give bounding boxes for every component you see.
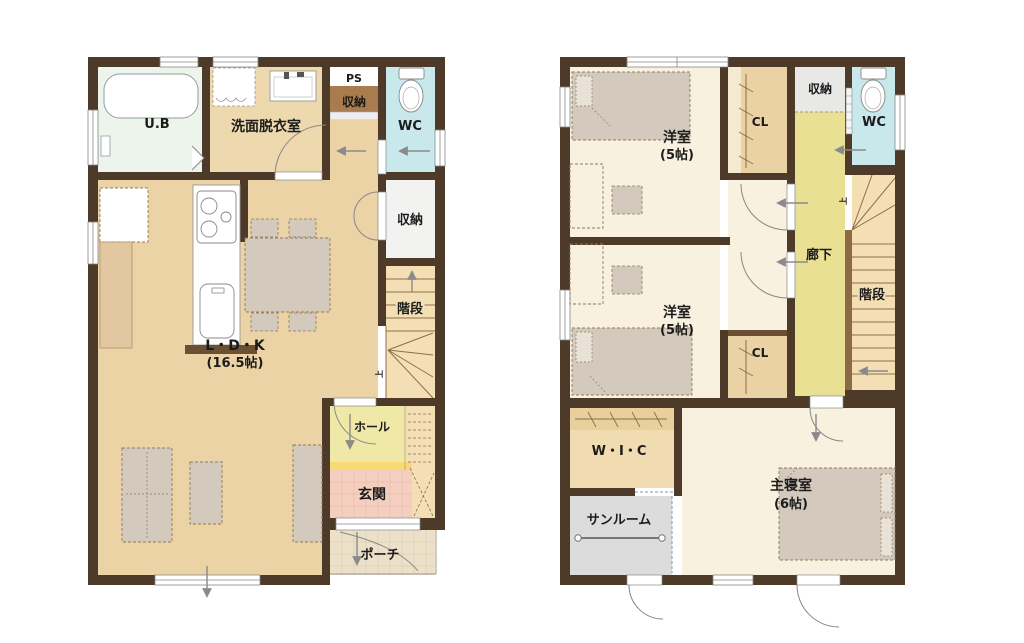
entrance-wedge [412,470,435,518]
room-hall [330,406,405,462]
floor2-plan: 洋室 (5帖) CL 収納 WC 廊下 階段 洋室 (5帖) CL W・I・C … [560,57,905,627]
coffee-table [190,462,222,524]
room-label-bedroom1: 洋室 [663,129,691,146]
room-label-wic: W・I・C [592,444,647,459]
dining-chair [289,313,316,331]
toilet-icon [399,68,424,112]
washing-machine-icon [213,68,255,106]
room-label-sunroom: サンルーム [587,513,652,528]
window [560,290,570,340]
dining-chair [251,219,278,237]
door-arc [797,575,840,627]
room-label-wc-2f: WC [862,115,886,130]
dining-chair [251,313,278,331]
room-label-porch: ポーチ [360,547,399,563]
room-label-closet2: CL [752,346,769,360]
entrance-step [330,462,412,470]
kitchen-sink-icon [200,284,234,338]
closet-upper-door [330,112,378,120]
room-label-stairs-2f: 階段 [859,287,885,303]
tv-board [293,445,322,542]
closet1-band [728,67,741,173]
room-label-ub: U.B [144,117,169,132]
stairs-up-mark-1f: 上 [374,370,384,378]
toilet-icon [861,68,886,112]
dining-chair [289,219,316,237]
room-label-storage-2f: 収納 [808,81,832,96]
corridor-1f [330,120,378,180]
room-sunroom [568,496,672,575]
room-bedroom1-ext [728,180,787,245]
folding-door-icon [846,88,852,134]
room-label-ldk: L・D・K [205,338,266,354]
room-label-master-bedroom: 主寝室 [770,477,812,494]
window [713,575,753,585]
door-opening [378,140,386,174]
room-stairs-1f [386,266,435,398]
window [895,95,905,150]
floor1-plan: U.B 洗面脱衣室 PS 収納 WC 収納 階段 L・D・K (16.5帖) ホ… [88,57,445,596]
dining-table [245,238,330,312]
room-label-bedroom1-size: (5帖) [660,147,694,163]
room-label-washroom: 洗面脱衣室 [231,118,301,135]
stove-icon [197,191,236,243]
cupboard [100,188,148,242]
room-label-storage-mid: 収納 [397,212,423,228]
room-label-master-bedroom-size: (6帖) [774,496,808,512]
window [627,57,728,67]
room-label-corridor: 廊下 [806,247,832,263]
window [88,110,98,165]
window [435,130,445,166]
chair [612,186,642,214]
sideboard [100,242,132,348]
room-label-storage-upper: 収納 [342,94,366,109]
window [560,87,570,127]
room-label-bedroom2: 洋室 [663,304,691,321]
sofa [122,448,172,542]
door-arc [627,575,663,619]
room-label-entrance: 玄関 [358,486,386,503]
room-label-ps: PS [346,72,362,85]
stairs-up-mark-2f: 上 [838,197,848,205]
room-label-wc: WC [398,119,422,134]
window [88,222,98,264]
room-label-ldk-size: (16.5帖) [207,355,264,371]
chair [612,266,642,294]
vanity-sink-icon [270,71,316,101]
window [160,57,198,67]
room-label-bedroom2-size: (5帖) [660,322,694,338]
room-label-hall: ホール [354,420,390,434]
window [213,57,258,67]
bed [572,328,692,395]
room-label-closet1: CL [752,115,769,129]
floorplan-canvas: U.B 洗面脱衣室 PS 収納 WC 収納 階段 L・D・K (16.5帖) ホ… [0,0,1024,643]
room-label-stairs-1f: 階段 [397,301,423,317]
